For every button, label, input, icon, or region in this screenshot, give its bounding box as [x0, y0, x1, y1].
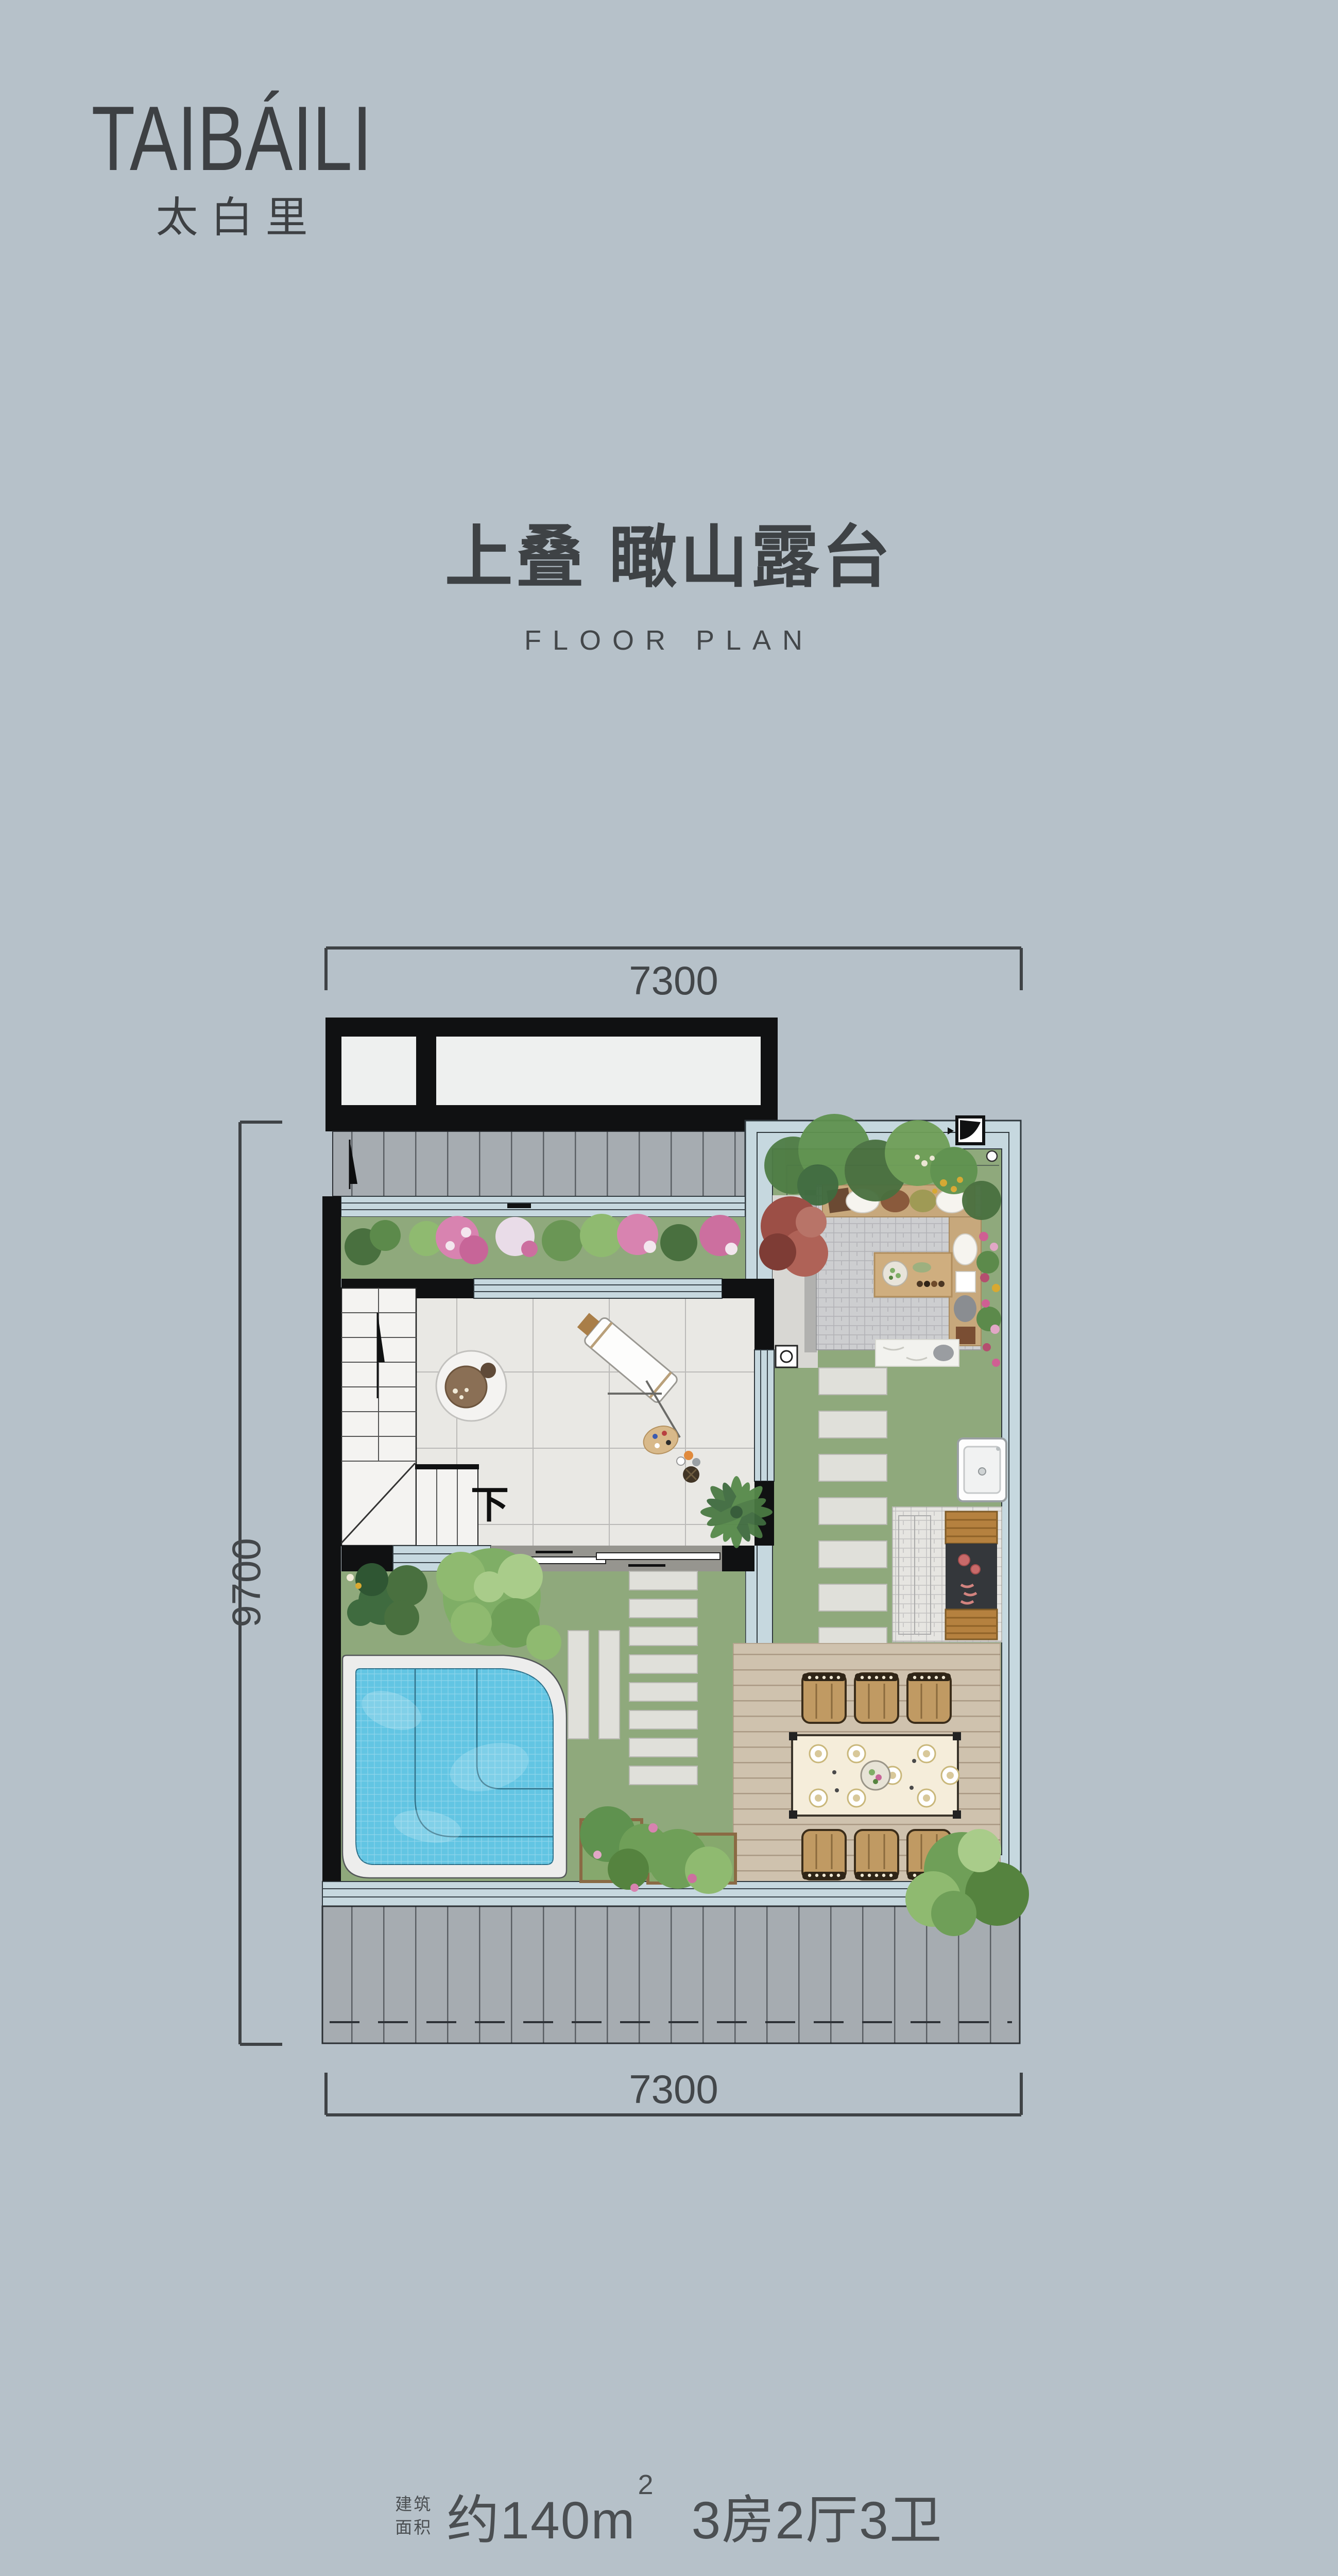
- area-value: 约140m 2 3房2厅3卫: [447, 2478, 942, 2554]
- outdoor-sink: [958, 1438, 1006, 1501]
- terrace-round-table: [436, 1351, 506, 1421]
- garden-lounge: [804, 1185, 981, 1366]
- floor-plan: 7300 7300 9700: [0, 0, 1338, 2576]
- upper-deck: [333, 1131, 745, 1196]
- swimming-pool: [342, 1655, 567, 1878]
- area-value-superscript: 2: [638, 2469, 654, 2501]
- roof-room-small: [341, 1037, 416, 1105]
- stairs-down-label: 下: [471, 1483, 509, 1526]
- area-label: 建筑 面积: [395, 2493, 432, 2539]
- left-wall: [322, 1196, 341, 1882]
- dimension-top-value: 7300: [629, 958, 718, 1003]
- bbq-grill: [946, 1512, 997, 1639]
- roof-room-large: [436, 1037, 761, 1105]
- area-label-line2: 面积: [395, 2516, 432, 2539]
- area-summary: 建筑 面积 约140m 2 3房2厅3卫: [0, 2478, 1338, 2554]
- room-configuration: 3房2厅3卫: [692, 2478, 943, 2554]
- bbq-area: [893, 1507, 1002, 1642]
- area-value-number: 约140m: [447, 2478, 636, 2554]
- terrace-palm: [700, 1476, 773, 1548]
- dining-table: [789, 1732, 961, 1819]
- lounge-coffee-table: [874, 1253, 952, 1297]
- wall-light: [776, 1346, 797, 1367]
- dimension-left-value: 9700: [224, 1538, 269, 1628]
- red-shrub: [759, 1196, 828, 1277]
- lounge-mat: [876, 1340, 959, 1366]
- dimension-bottom-value: 7300: [629, 2066, 718, 2112]
- lower-deck: [322, 1906, 1020, 2043]
- area-label-line1: 建筑: [395, 2493, 432, 2516]
- roof-structure: [325, 1018, 778, 1131]
